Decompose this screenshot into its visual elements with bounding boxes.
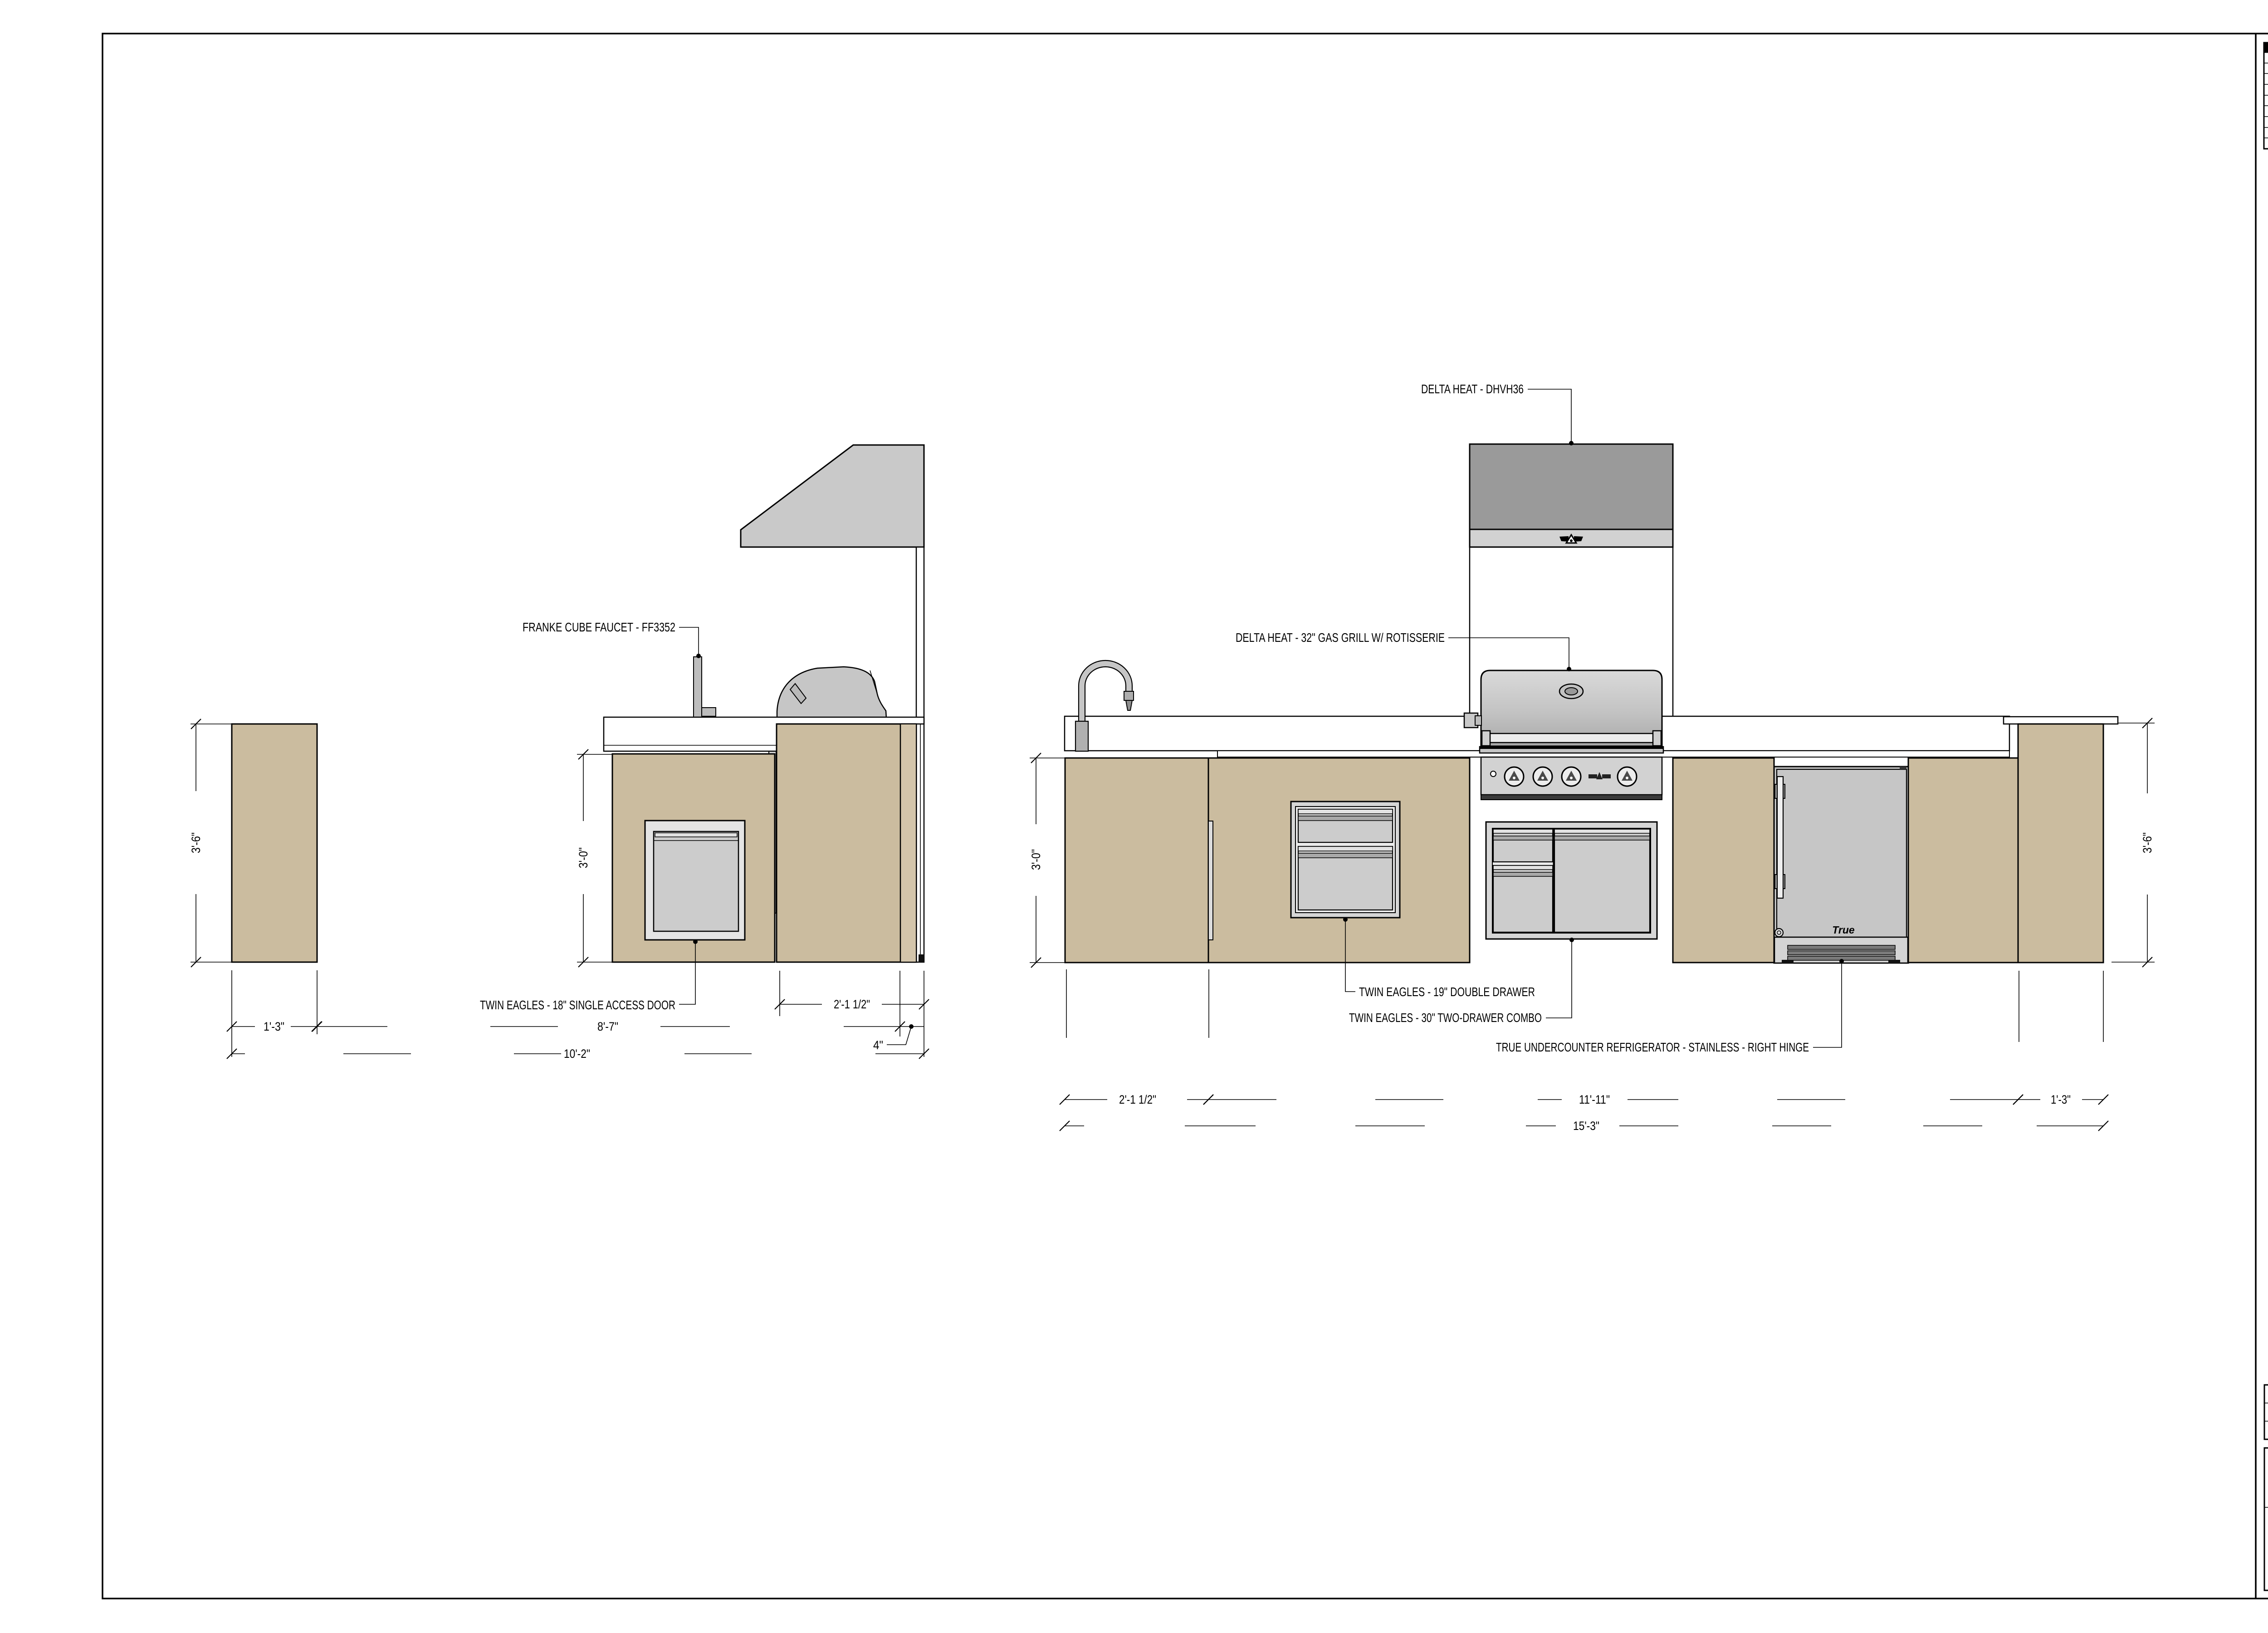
svg-text:DELTA HEAT - 32" GAS GRILL W/: DELTA HEAT - 32" GAS GRILL W/ ROTISSERIE — [1236, 631, 1445, 645]
svg-text:4": 4" — [873, 1038, 883, 1052]
svg-text:PRATT GUYS: PRATT GUYS — [2239, 332, 2268, 786]
svg-text:True: True — [1832, 924, 1855, 936]
svg-text:2'-1 1/2": 2'-1 1/2" — [1119, 1093, 1156, 1106]
svg-text:15'-3": 15'-3" — [1573, 1119, 1599, 1133]
svg-text:TWIN EAGLES - 19" DOUBLE DRAWE: TWIN EAGLES - 19" DOUBLE DRAWER — [1359, 985, 1535, 999]
svg-text:MCFARLAND RESIDENCE: MCFARLAND RESIDENCE — [2263, 907, 2268, 1310]
svg-text:DELTA HEAT - DHVH36: DELTA HEAT - DHVH36 — [1421, 382, 1524, 396]
svg-text:11'-11": 11'-11" — [1579, 1093, 1610, 1106]
svg-text:3'-0": 3'-0" — [1029, 849, 1043, 870]
svg-text:1'-3": 1'-3" — [2051, 1093, 2071, 1106]
svg-text:3'-6": 3'-6" — [189, 832, 203, 853]
svg-text:TRUE UNDERCOUNTER REFRIGERATOR: TRUE UNDERCOUNTER REFRIGERATOR - STAINLE… — [1496, 1040, 1809, 1054]
svg-text:1'-3": 1'-3" — [264, 1020, 284, 1033]
svg-text:FRANKE CUBE FAUCET - FF3352: FRANKE CUBE FAUCET - FF3352 — [523, 620, 675, 634]
svg-text:10'-2": 10'-2" — [564, 1047, 590, 1061]
svg-text:3'-0": 3'-0" — [577, 847, 590, 868]
svg-text:TWIN EAGLES - 30" TWO-DRAWER C: TWIN EAGLES - 30" TWO-DRAWER COMBO — [1349, 1011, 1542, 1025]
svg-text:2'-1 1/2": 2'-1 1/2" — [834, 997, 870, 1011]
svg-text:3'-6": 3'-6" — [2141, 832, 2154, 853]
svg-text:8'-7": 8'-7" — [597, 1020, 618, 1033]
svg-text:TWIN EAGLES - 18" SINGLE ACCES: TWIN EAGLES - 18" SINGLE ACCESS DOOR — [480, 998, 675, 1012]
